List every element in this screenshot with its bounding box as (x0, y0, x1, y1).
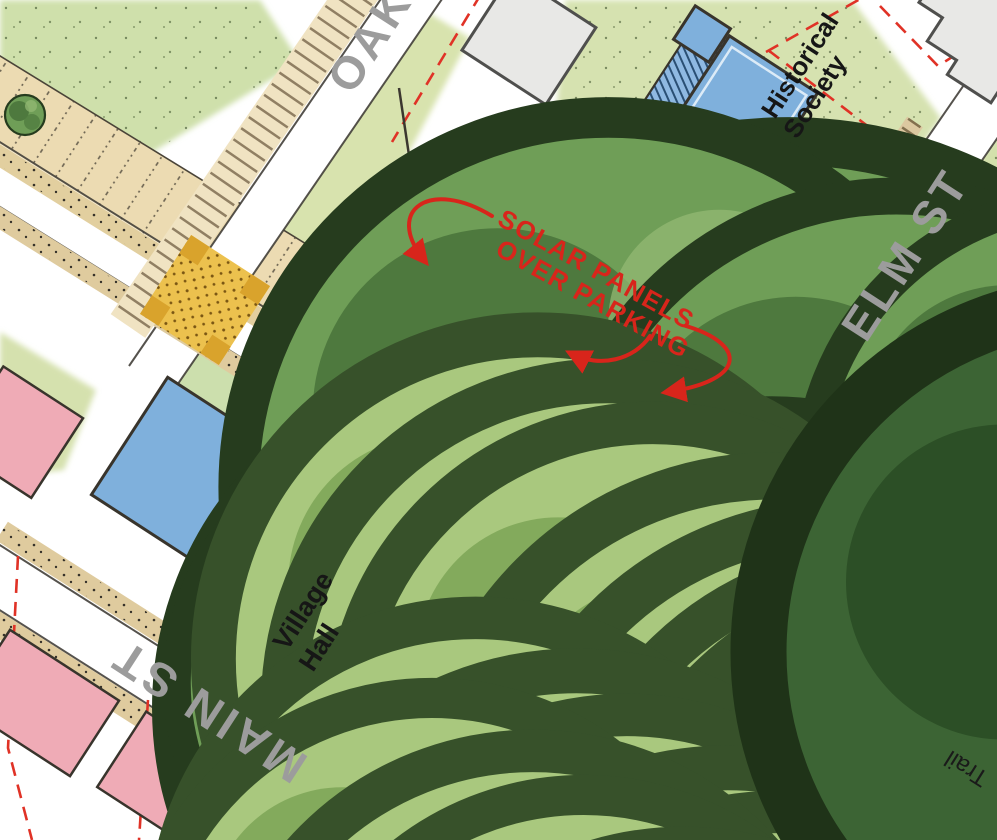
tree (5, 95, 45, 135)
site-plan: OAK ST ELM ST MAIN ST Trail Historical S… (0, 0, 997, 840)
